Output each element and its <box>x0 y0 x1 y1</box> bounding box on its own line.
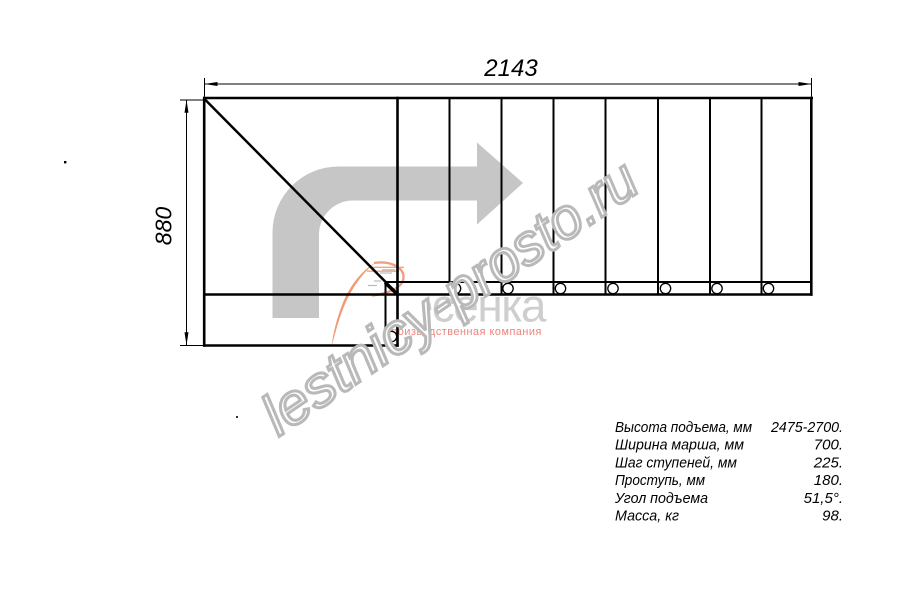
svg-text:2475-2700.: 2475-2700. <box>770 419 843 436</box>
svg-text:Шаг ступеней, мм: Шаг ступеней, мм <box>615 454 737 471</box>
svg-text:Угол подъема: Угол подъема <box>614 490 708 507</box>
svg-text:Ширина марша, мм: Ширина марша, мм <box>615 437 744 454</box>
svg-text:51,5°.: 51,5°. <box>804 490 843 507</box>
svg-text:180.: 180. <box>814 472 843 489</box>
svg-text:98.: 98. <box>822 508 843 525</box>
svg-text:700.: 700. <box>814 437 843 454</box>
svg-text:2143: 2143 <box>483 55 538 82</box>
svg-text:880: 880 <box>151 207 177 246</box>
svg-text:Проступь, мм: Проступь, мм <box>615 472 705 489</box>
svg-text:Масса, кг: Масса, кг <box>615 508 680 525</box>
svg-text:Высота подъема, мм: Высота подъема, мм <box>615 419 752 436</box>
svg-text:225.: 225. <box>813 454 843 471</box>
